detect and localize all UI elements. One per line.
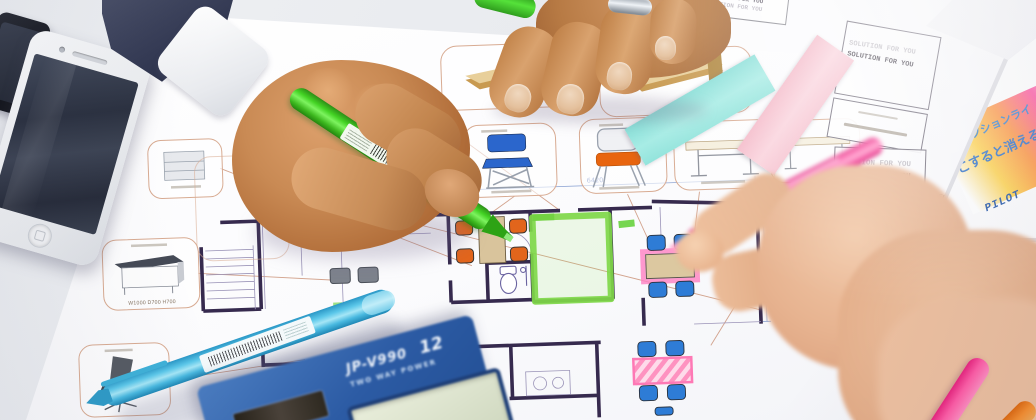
blue-chair bbox=[647, 235, 666, 251]
project-title-label: PROJECT TITLE bbox=[833, 209, 923, 217]
toilet-fixture bbox=[500, 266, 527, 294]
grey-chair bbox=[358, 267, 379, 283]
phone-speaker bbox=[72, 51, 108, 66]
titleblock-stamp: SOLUTION FOR YOU bbox=[838, 171, 910, 182]
stamp-box: SOLUTION FOR YOU SOLUTION FOR YOU bbox=[833, 146, 927, 203]
date-box: 15.08.28 bbox=[855, 413, 920, 420]
blue-chair bbox=[676, 281, 695, 297]
meeting-set-a bbox=[642, 234, 698, 298]
blue-chair bbox=[674, 234, 693, 250]
green-tick bbox=[618, 219, 635, 228]
grey-chair bbox=[330, 268, 351, 284]
orange-chair bbox=[455, 221, 472, 236]
drawing-title-box bbox=[830, 264, 923, 293]
meeting-set-b bbox=[633, 340, 694, 416]
blue-chair bbox=[666, 340, 685, 356]
icon-shelf-left bbox=[440, 41, 592, 110]
orange-chair bbox=[510, 247, 527, 262]
titleblock-stamp-ghost: SOLUTION FOR YOU bbox=[839, 159, 911, 170]
project-title-box: PROJECT TITLE ひまわりの家様 bbox=[831, 204, 925, 263]
orange-chair bbox=[509, 219, 526, 234]
orange-chair bbox=[456, 249, 473, 264]
blue-chair bbox=[639, 385, 658, 401]
photo-scene: SOLUTION FOR YOU SOLUTION FOR YOU 6420 bbox=[0, 0, 1036, 420]
under-sheet-titleblock: SOLUTION FOR YOU SOLUTION FOR YOU bbox=[826, 21, 941, 154]
green-room-highlight bbox=[532, 215, 611, 302]
phone-camera bbox=[58, 46, 65, 53]
icon-desk: W1000 D700 H700 bbox=[102, 237, 200, 310]
project-title-name: ひまわりの家様 bbox=[832, 229, 922, 246]
blue-chair bbox=[667, 384, 686, 400]
dining-set bbox=[455, 216, 528, 264]
blue-chair bbox=[655, 407, 673, 416]
icon-cabinet bbox=[147, 138, 223, 199]
pink-hatched-table bbox=[633, 357, 692, 384]
icon-folding-chair bbox=[463, 123, 557, 198]
blue-chair bbox=[649, 282, 668, 298]
home-button-square bbox=[34, 230, 46, 242]
main-titleblock: SOLUTION FOR YOU SOLUTION FOR YOU PROJEC… bbox=[830, 146, 927, 293]
blue-chair bbox=[638, 341, 657, 357]
phone-home-button bbox=[25, 221, 55, 251]
calculator-digits: 12 bbox=[417, 333, 445, 358]
blue-pen-label-text bbox=[283, 322, 309, 340]
calculator-solar-panel bbox=[232, 389, 330, 420]
